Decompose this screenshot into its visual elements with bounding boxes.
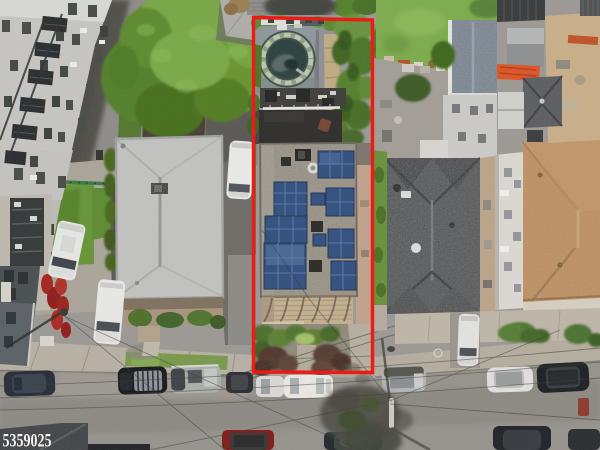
svg-text:5359025: 5359025: [3, 432, 52, 450]
